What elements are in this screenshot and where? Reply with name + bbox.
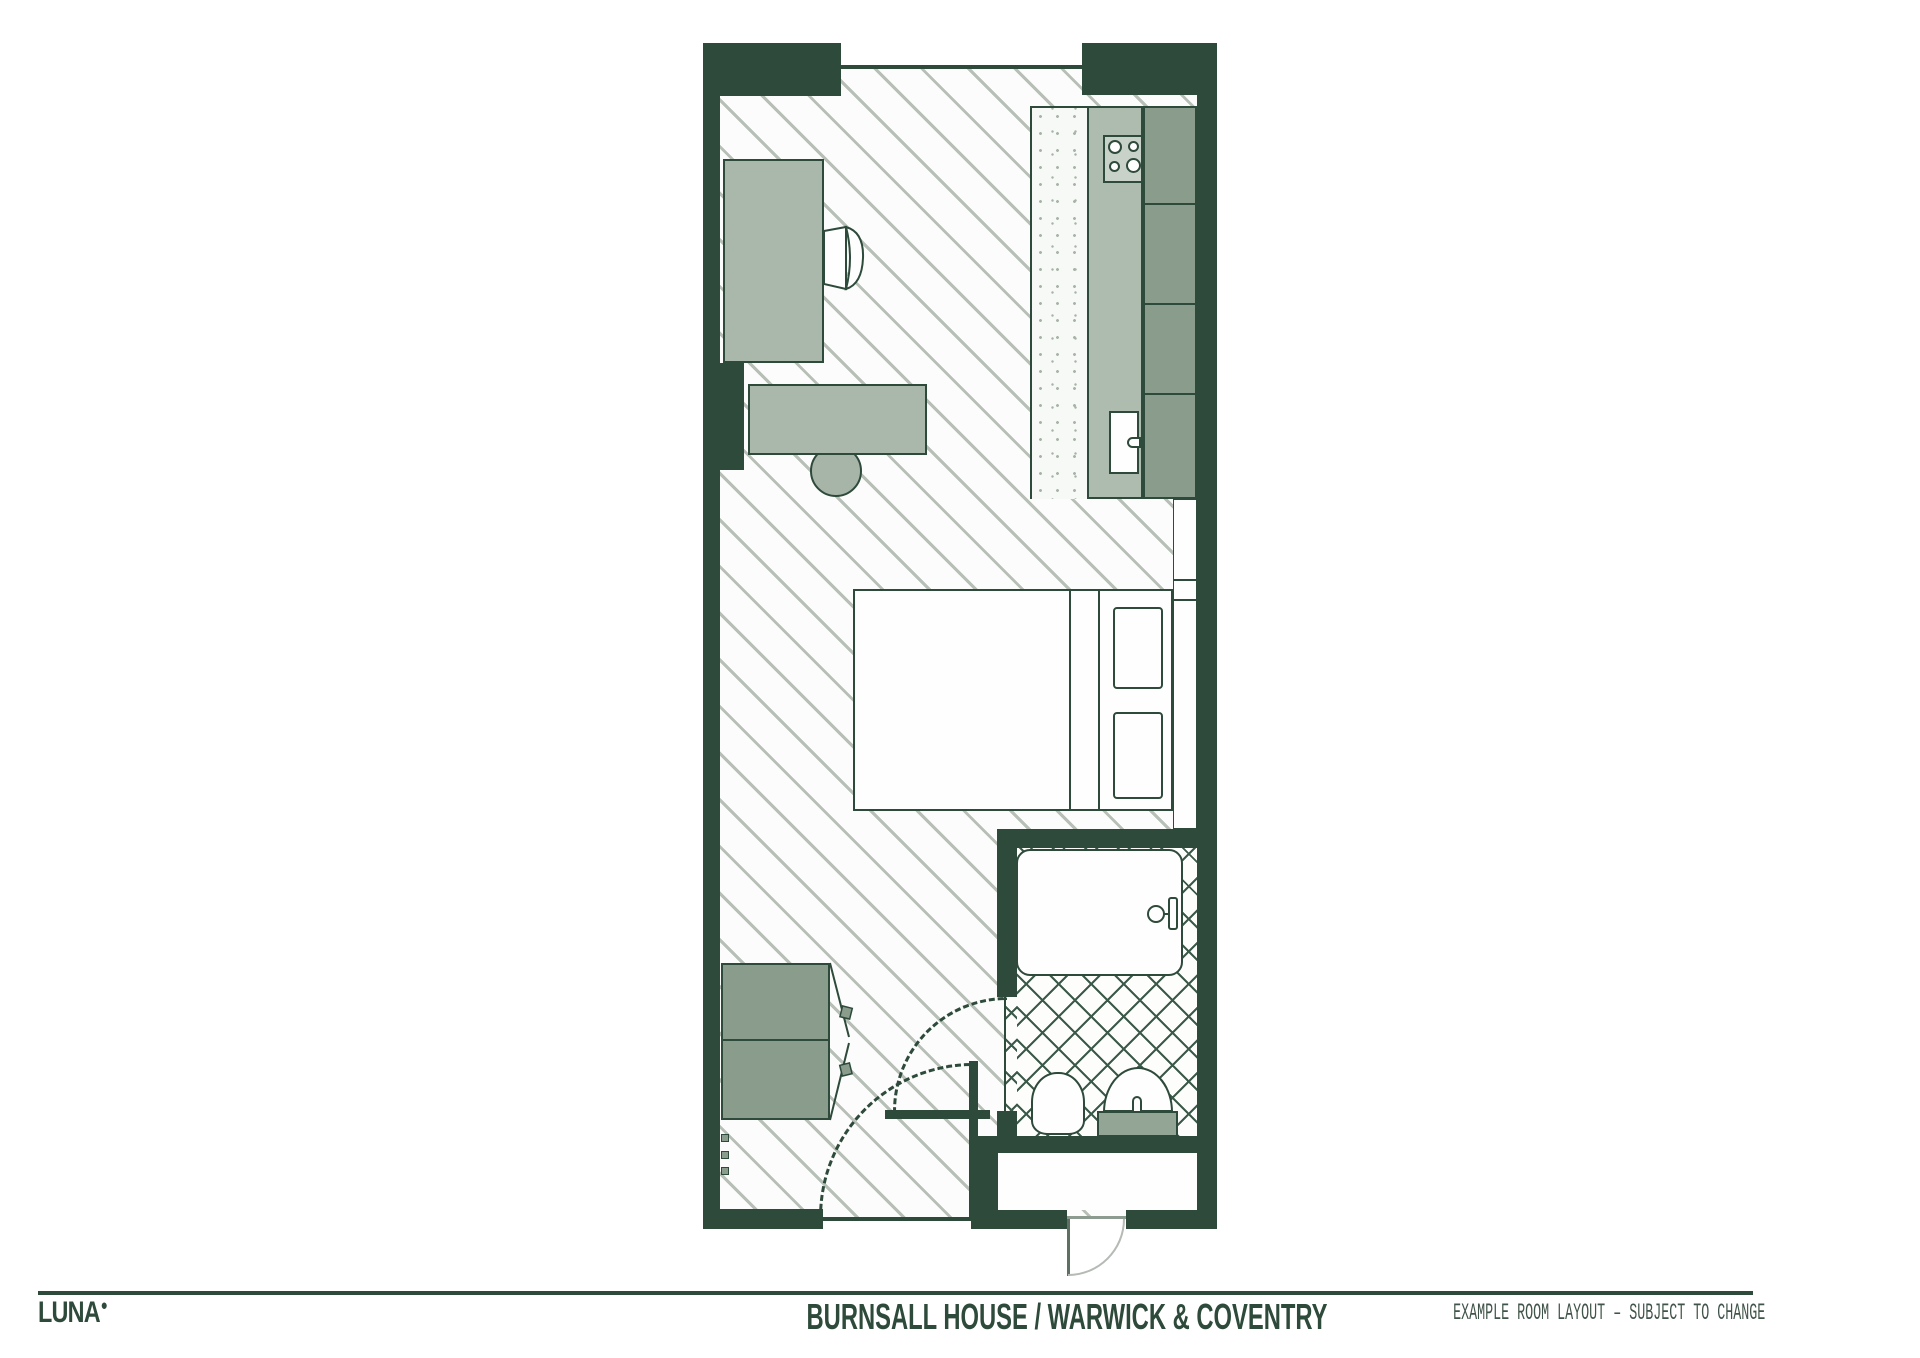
floor-plan [0,0,1920,1358]
pillow [1113,712,1163,799]
cabinet-divider [1145,393,1195,395]
hob-burner [1108,140,1122,154]
wall-bottom-left [703,1209,823,1229]
wall-left [703,43,720,1229]
wall-bottom-thin [823,1217,971,1221]
footer-rule [38,1291,1753,1295]
socket-icon [721,1134,729,1142]
hob-burner [1109,161,1120,172]
socket-icon [721,1167,729,1175]
shelf-line [1174,599,1196,601]
kitchen-vinyl-floor [1030,106,1087,499]
disclaimer-note: EXAMPLE ROOM LAYOUT – SUBJECT TO CHANGE [1453,1300,1765,1326]
luna-logo-dot-icon: ● [101,1297,108,1314]
shelf-line [1174,579,1196,581]
wall-entry-right [1126,1210,1217,1229]
toilet [1031,1072,1085,1135]
cabinet-divider [1145,303,1195,305]
wall-bathroom-bottom [997,1136,1217,1153]
sink-tap-icon [1127,437,1141,448]
shower-rail-icon [1168,897,1178,930]
shower-head-icon [1147,905,1165,923]
wall-top-left [703,43,841,96]
hob-burner [1126,158,1141,173]
socket-icon [721,1151,729,1159]
wardrobe-doors-icon [826,958,856,1128]
entry-door-swing-arc [1068,1219,1125,1276]
entry-vestibule-floor [998,1153,1198,1210]
bed-line [1069,591,1071,809]
luna-logo: LUNA● [38,1296,107,1330]
study-desk [723,159,824,363]
cabinet-divider [1145,203,1195,205]
basin-pedestal [1097,1111,1178,1137]
wardrobe [721,963,830,1120]
desk-chair-icon [818,220,870,296]
basin-tap-icon [1132,1096,1142,1113]
wall-bathroom-left-stub [997,1111,1017,1136]
plan-title: BURNSALL HOUSE / WARWICK & COVENTRY [807,1296,1328,1338]
hob-burner [1128,141,1139,152]
wall-bathroom-left [997,829,1017,997]
wall-pillar-left [703,363,744,470]
radiator-shelf [1173,499,1197,829]
window [841,65,1082,69]
wall-right [1197,43,1217,1229]
wall-entry-left [971,1210,1067,1229]
wardrobe-divider [723,1039,828,1041]
luna-logo-text: LUNA [38,1296,100,1329]
dressing-desk [748,384,927,455]
bed-line [1098,591,1100,809]
wall-bathroom-top [997,829,1217,848]
pillow [1113,607,1163,689]
